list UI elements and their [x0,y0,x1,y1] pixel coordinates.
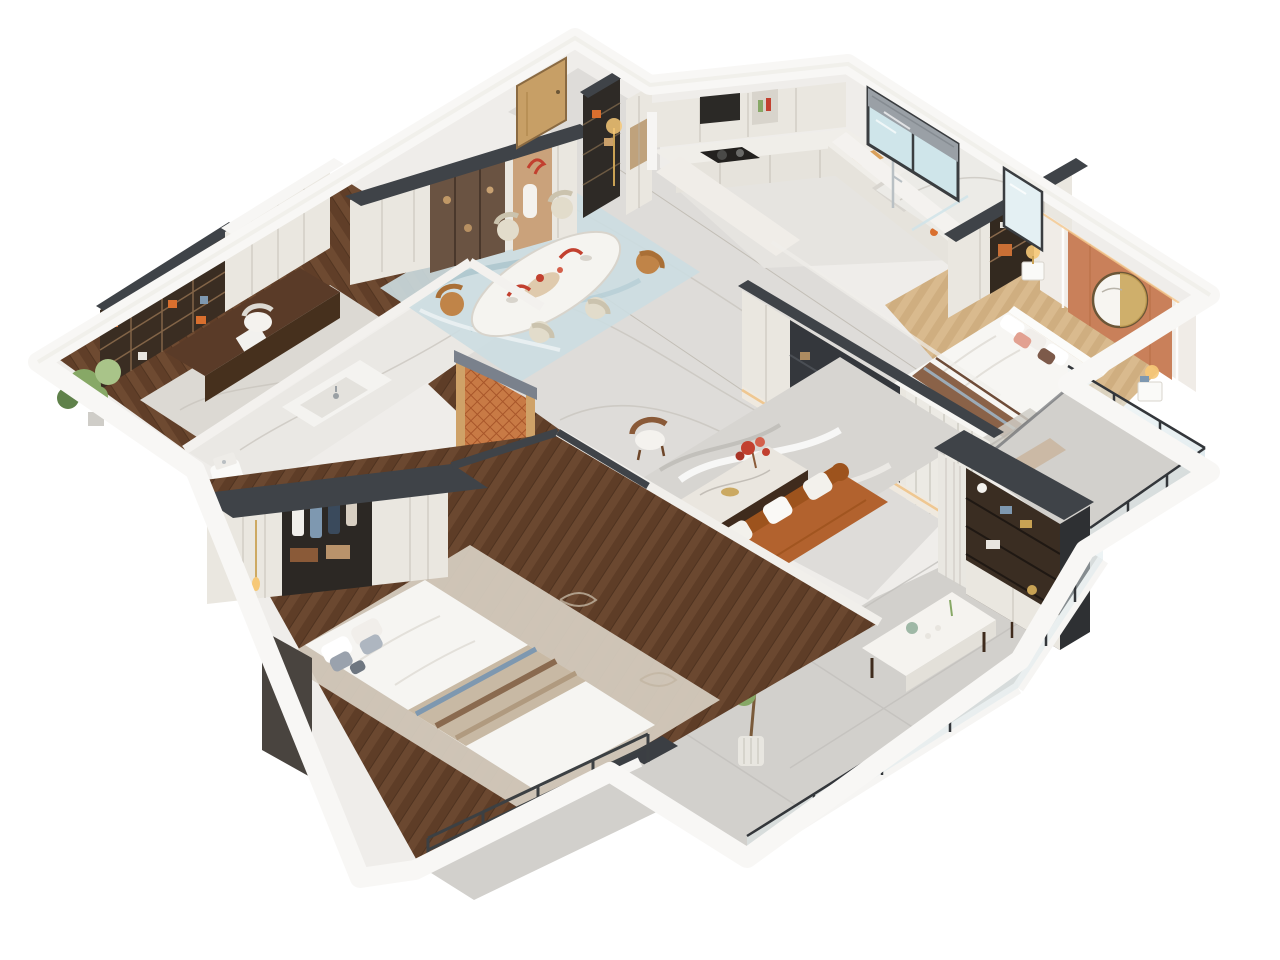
white-vase [523,184,537,218]
round-mirror [1093,273,1147,327]
door-handle [556,90,560,94]
blue-books [1140,376,1149,382]
gold-tray [721,488,739,497]
floor-plan-stage [0,0,1280,960]
range-hood [700,93,740,124]
white-vase-2 [977,483,987,493]
cooking-pot [736,149,744,157]
orange-drawer [998,244,1012,256]
celadon-teapot [906,622,918,634]
floor-plan-render [0,0,1280,960]
open-shelf [752,89,778,125]
